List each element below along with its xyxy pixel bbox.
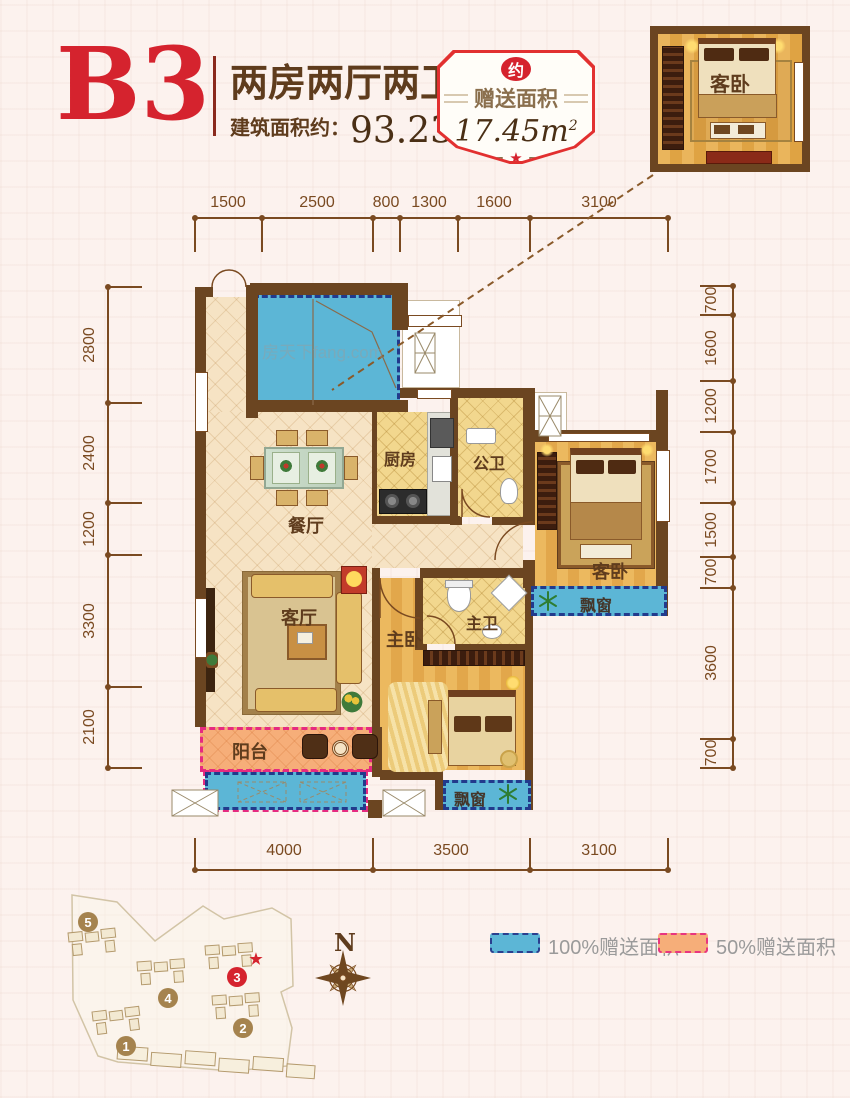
dim-right-8: 700 bbox=[703, 740, 721, 767]
living-flowers bbox=[340, 690, 364, 714]
room-label-master-bedroom: 主卧 bbox=[386, 626, 422, 652]
kitchen-sink bbox=[432, 456, 452, 482]
public-bath-toilet bbox=[500, 478, 518, 504]
star-dash-right bbox=[529, 157, 545, 159]
badge-star-row: ★ bbox=[487, 149, 544, 167]
room-label-public-bath: 公卫 bbox=[473, 450, 505, 474]
badge-approx-tag: 约 bbox=[501, 57, 531, 81]
wall-segment bbox=[372, 412, 377, 516]
wall-segment bbox=[195, 297, 206, 727]
planter-strip-outer bbox=[203, 770, 368, 812]
wall-segment bbox=[372, 516, 460, 524]
site-number-4: 4 bbox=[164, 991, 172, 1006]
guest-wardrobe bbox=[537, 452, 557, 530]
gift-area-badge: 约 赠送面积 17.45m2 ★ bbox=[437, 50, 595, 164]
room-label-master-bay: 飘窗 bbox=[454, 786, 486, 810]
tv-console bbox=[206, 588, 215, 692]
dim-bottom-2: 3500 bbox=[433, 842, 469, 860]
stove-burner-1 bbox=[385, 494, 399, 508]
wall-segment bbox=[435, 780, 443, 810]
guest-bedroom-inset: 客卧 bbox=[650, 26, 810, 172]
badge-value: 17.45m2 bbox=[454, 114, 577, 149]
legend-label-50: 50%赠送面积 bbox=[716, 931, 836, 960]
inset-room-label: 客卧 bbox=[710, 68, 750, 97]
dining-chair-left bbox=[250, 456, 264, 480]
site-marker-2 bbox=[233, 1018, 253, 1038]
dim-right-2: 1600 bbox=[703, 330, 721, 366]
dining-chair-top-1 bbox=[276, 430, 298, 446]
wall-segment bbox=[372, 568, 380, 578]
wall-segment bbox=[250, 283, 408, 295]
legend-swatch-50 bbox=[658, 933, 708, 953]
dim-left-3: 1200 bbox=[81, 511, 99, 547]
banner-line-right bbox=[564, 94, 588, 103]
layout-title: 两房两厅两卫 bbox=[230, 52, 458, 107]
dim-top-5: 1600 bbox=[476, 194, 512, 212]
balcony-chair-right bbox=[352, 734, 378, 759]
dim-right-4: 1700 bbox=[703, 449, 721, 485]
wall-segment bbox=[450, 517, 462, 525]
site-building-1 bbox=[92, 1006, 141, 1035]
star-dash-left bbox=[487, 157, 503, 159]
hallway-floor bbox=[372, 524, 523, 568]
master-bench bbox=[428, 700, 442, 754]
header-divider bbox=[213, 56, 216, 136]
wall-segment bbox=[368, 800, 382, 818]
inset-blanket bbox=[698, 94, 777, 118]
site-marker-1 bbox=[116, 1036, 136, 1056]
inset-bench-cushion-2 bbox=[738, 125, 754, 134]
site-plan: 5 4 3 1 2 ★ bbox=[68, 895, 316, 1079]
dim-top-1: 1500 bbox=[210, 194, 246, 212]
site-number-5: 5 bbox=[84, 915, 91, 930]
room-label-living: 客厅 bbox=[281, 604, 317, 630]
balcony-table bbox=[332, 740, 349, 757]
dim-right-6: 700 bbox=[703, 559, 721, 586]
room-label-kitchen: 厨房 bbox=[384, 446, 416, 470]
inset-window bbox=[794, 62, 804, 142]
dim-top-3: 800 bbox=[373, 194, 400, 212]
wall-segment bbox=[420, 568, 535, 578]
wall-segment bbox=[246, 400, 408, 412]
area-label: 建筑面积约： bbox=[230, 117, 350, 139]
window bbox=[417, 389, 452, 399]
site-marker-5 bbox=[78, 912, 98, 932]
inset-pillow-left bbox=[704, 48, 734, 61]
dim-right-3: 1200 bbox=[703, 388, 721, 424]
dim-bottom-3: 3100 bbox=[581, 842, 617, 860]
window bbox=[656, 450, 670, 522]
plan-code: B3 bbox=[56, 34, 210, 134]
entry-hall-floor bbox=[206, 297, 246, 418]
site-marker-4 bbox=[158, 988, 178, 1008]
dim-right-5: 1500 bbox=[703, 512, 721, 548]
sofa-right bbox=[336, 592, 362, 684]
kitchen-fridge bbox=[430, 418, 454, 448]
sofa-bottom bbox=[255, 688, 337, 712]
dim-left-2: 2400 bbox=[81, 435, 99, 471]
guest-blanket bbox=[570, 502, 642, 540]
wall-segment bbox=[372, 578, 380, 727]
master-lamp bbox=[506, 676, 520, 690]
dim-top-2: 2500 bbox=[299, 194, 335, 212]
site-building-2 bbox=[212, 993, 260, 1019]
wall-segment bbox=[246, 285, 258, 418]
site-boundary bbox=[72, 895, 293, 1071]
dining-chair-bottom-2 bbox=[306, 490, 328, 506]
dining-chair-top-2 bbox=[306, 430, 328, 446]
room-label-balcony: 阳台 bbox=[232, 738, 268, 764]
gift-area-badge-inner: 约 赠送面积 17.45m2 ★ bbox=[440, 53, 592, 161]
dim-left-4: 3300 bbox=[81, 603, 99, 639]
master-toilet-tank bbox=[445, 580, 473, 588]
dim-top-6: 3100 bbox=[581, 194, 617, 212]
dining-chair-bottom-1 bbox=[276, 490, 298, 506]
inset-dresser bbox=[706, 151, 772, 164]
guest-pillow-2 bbox=[608, 460, 636, 474]
dim-top-4: 1300 bbox=[411, 194, 447, 212]
lamp-globe bbox=[346, 571, 362, 587]
wall-segment bbox=[195, 287, 213, 297]
room-label-guest-bay: 飘窗 bbox=[580, 592, 612, 616]
window bbox=[408, 315, 462, 327]
dining-chair-right bbox=[344, 456, 358, 480]
site-marker-3-highlight bbox=[227, 967, 247, 987]
window bbox=[195, 372, 208, 432]
wall-segment bbox=[523, 442, 535, 522]
guest-lamp-left bbox=[540, 443, 554, 457]
inset-wardrobe bbox=[662, 46, 684, 150]
window bbox=[548, 433, 650, 442]
balcony-chair-left bbox=[302, 734, 328, 759]
compass-rose bbox=[315, 950, 371, 1006]
dim-right-7: 3600 bbox=[703, 645, 721, 681]
dim-right-1: 700 bbox=[703, 287, 721, 314]
dim-left-1: 2800 bbox=[81, 327, 99, 363]
site-building-3 bbox=[205, 943, 253, 969]
master-pillow-1 bbox=[454, 716, 481, 732]
watermark: 房天下fang.com bbox=[262, 338, 383, 363]
site-building-4 bbox=[137, 959, 185, 985]
shaft-area-top bbox=[402, 300, 460, 388]
stove-burner-2 bbox=[406, 494, 420, 508]
site-number-1: 1 bbox=[122, 1039, 129, 1054]
public-bath-vanity bbox=[466, 428, 496, 444]
coffee-table-magazine bbox=[297, 632, 313, 644]
dining-flowers-2 bbox=[316, 460, 328, 472]
ac-platform-center bbox=[383, 790, 425, 816]
master-wardrobe bbox=[423, 650, 525, 666]
planter-strip bbox=[205, 772, 366, 810]
site-building-5 bbox=[68, 928, 117, 956]
star-icon: ★ bbox=[509, 149, 522, 167]
dining-flowers-1 bbox=[280, 460, 292, 472]
dim-left-5: 2100 bbox=[81, 709, 99, 745]
compass-north-label: N bbox=[334, 928, 356, 957]
inset-bench-cushion-1 bbox=[714, 125, 730, 134]
room-label-guest-bedroom: 客卧 bbox=[592, 558, 628, 584]
legend-swatch-100 bbox=[490, 933, 540, 953]
sofa-top bbox=[251, 574, 333, 598]
banner-line-left bbox=[444, 94, 468, 103]
wall-segment bbox=[392, 285, 408, 330]
badge-title: 赠送面积 bbox=[474, 83, 558, 113]
plant-pot-left bbox=[206, 652, 218, 668]
badge-banner: 赠送面积 bbox=[444, 83, 588, 113]
master-pillow-2 bbox=[485, 716, 512, 732]
site-number-2: 2 bbox=[239, 1021, 246, 1036]
site-star-marker: ★ bbox=[249, 951, 263, 968]
master-round-rug bbox=[500, 750, 518, 768]
room-label-master-bath: 主卫 bbox=[466, 610, 498, 634]
inset-pillow-right bbox=[739, 48, 769, 61]
site-number-3: 3 bbox=[233, 970, 240, 985]
guest-lamp-right bbox=[640, 443, 654, 457]
guest-pillow-1 bbox=[576, 460, 604, 474]
room-label-dining: 餐厅 bbox=[288, 512, 324, 538]
dim-bottom-1: 4000 bbox=[266, 842, 302, 860]
guest-bench bbox=[580, 544, 632, 559]
site-building-row bbox=[117, 1046, 316, 1079]
wall-segment bbox=[523, 388, 535, 432]
